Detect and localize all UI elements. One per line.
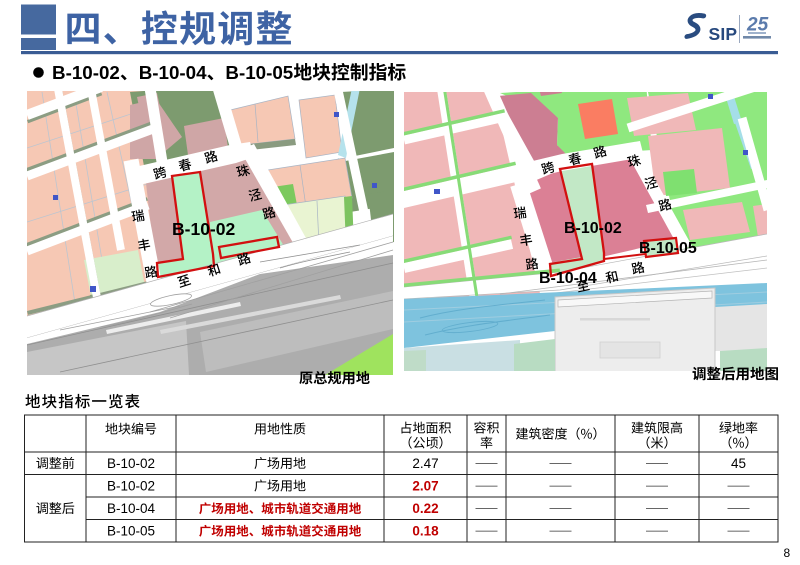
- svg-text:——: ——: [476, 525, 498, 537]
- svg-text:——: ——: [476, 503, 498, 515]
- svg-text:SIP: SIP: [709, 24, 738, 44]
- svg-text:——: ——: [476, 457, 498, 469]
- svg-text:B-10-05: B-10-05: [639, 240, 697, 257]
- svg-text:B-10-04: B-10-04: [539, 270, 597, 287]
- svg-text:B-10-05: B-10-05: [107, 524, 155, 539]
- svg-text:2.47: 2.47: [412, 456, 438, 471]
- svg-text:B-10-04: B-10-04: [139, 62, 207, 83]
- svg-text:——: ——: [550, 525, 572, 537]
- svg-text:——: ——: [728, 480, 750, 492]
- svg-text:——: ——: [646, 503, 668, 515]
- svg-text:——: ——: [550, 457, 572, 469]
- svg-text:0.22: 0.22: [412, 501, 438, 516]
- svg-text:45: 45: [731, 456, 746, 471]
- svg-text:8: 8: [784, 546, 791, 560]
- svg-text:B-10-05: B-10-05: [225, 62, 293, 83]
- svg-text:2.07: 2.07: [412, 478, 438, 493]
- svg-text:——: ——: [646, 480, 668, 492]
- svg-text:B-10-02: B-10-02: [107, 478, 155, 493]
- svg-text:——: ——: [550, 503, 572, 515]
- svg-text:——: ——: [646, 525, 668, 537]
- svg-text:——: ——: [728, 503, 750, 515]
- svg-text:——: ——: [550, 480, 572, 492]
- svg-text:——: ——: [476, 480, 498, 492]
- svg-text:B-10-04: B-10-04: [107, 501, 156, 516]
- svg-text:——: ——: [728, 525, 750, 537]
- svg-text:B-10-02: B-10-02: [52, 62, 120, 83]
- svg-text:——: ——: [646, 457, 668, 469]
- svg-text:B-10-02: B-10-02: [172, 219, 235, 239]
- svg-text:B-10-02: B-10-02: [107, 456, 155, 471]
- svg-text:0.18: 0.18: [412, 524, 439, 539]
- svg-text:B-10-02: B-10-02: [564, 220, 622, 237]
